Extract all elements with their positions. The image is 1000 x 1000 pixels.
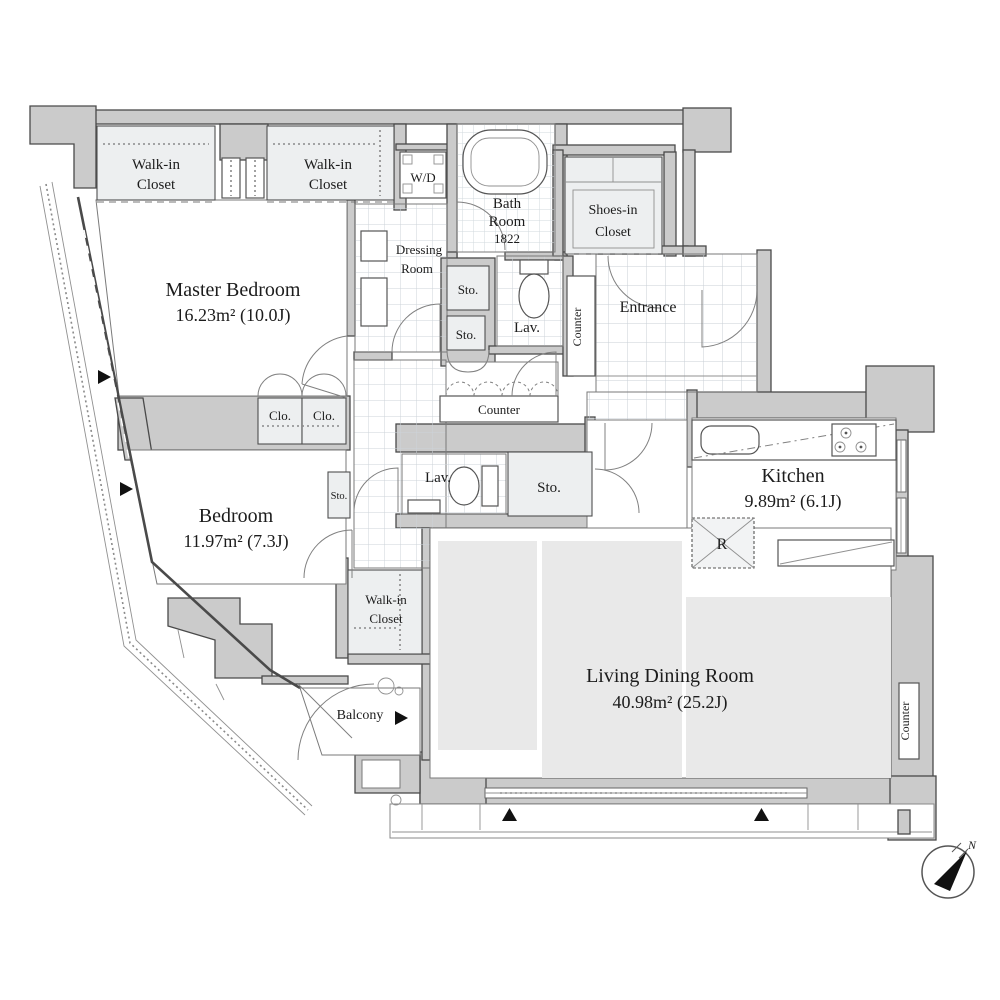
left-balcony-tick-2 <box>216 684 224 700</box>
wic2-label-line1: Walk-in <box>304 157 352 173</box>
living-shade-panel-1 <box>438 541 537 750</box>
wall-top <box>85 110 697 124</box>
bedroom-name: Bedroom <box>199 505 274 527</box>
bath-label-line1: Bath <box>493 196 522 212</box>
bath-size-label: 1822 <box>494 231 520 246</box>
bottom-balcony-floor <box>390 804 934 838</box>
wall-right-upper <box>683 150 695 256</box>
wd-label: W/D <box>410 170 435 185</box>
sto2-label: Sto. <box>456 327 477 342</box>
clo2-label: Clo. <box>313 408 335 423</box>
floor-plan-drawing: N Walk-in Closet Walk-in Closet W/D Bath… <box>0 0 1000 1000</box>
refrigerator-label: R <box>717 536 728 553</box>
dressing-cabinet-1 <box>361 231 387 261</box>
below-balcony-box <box>362 760 400 788</box>
entrance-label: Entrance <box>620 299 677 316</box>
clo1-label: Clo. <box>269 408 291 423</box>
view-triangle-left-1 <box>98 370 111 384</box>
wic3-label-line2: Closet <box>369 611 403 626</box>
dressing-cabinet-2 <box>361 278 387 326</box>
wall-bath-left <box>447 124 457 260</box>
wall-balcony-top <box>262 676 348 684</box>
kitchen-window-2 <box>897 498 906 553</box>
shoes-closet-label-line1: Shoes-in <box>589 203 638 218</box>
master-bedroom-area: 16.23m² (10.0J) <box>176 305 291 326</box>
wall-dressing-bottom <box>354 352 392 360</box>
hall-floor <box>587 420 687 543</box>
entrance-floor <box>596 254 757 392</box>
dressing-label-line2: Room <box>401 261 433 276</box>
wall-entrance-to-pillar <box>695 392 870 418</box>
wall-wd-top <box>396 144 448 150</box>
stove-burner-2-dot <box>839 446 842 449</box>
kitchen-area: 9.89m² (6.1J) <box>745 491 842 512</box>
stove-burner-3-dot <box>860 446 863 449</box>
compass-north-label: N <box>967 838 977 852</box>
counter-living-label: Counter <box>898 702 912 741</box>
kitchen-window-1 <box>897 440 906 492</box>
wall-top-left-pillar <box>30 106 96 188</box>
bath-label-line2: Room <box>489 214 526 230</box>
balcony-label: Balcony <box>337 708 384 723</box>
counter-hall-label: Counter <box>478 402 521 417</box>
wic3-label-line1: Walk-in <box>365 592 407 607</box>
counter-niche-floor <box>446 362 558 396</box>
lav2-sink <box>408 500 440 513</box>
sto1-label: Sto. <box>458 282 479 297</box>
wall-wic3-bottom <box>348 654 434 664</box>
kitchen-stove <box>832 424 876 456</box>
wall-wic-divider <box>220 124 268 160</box>
stove-burner-1-dot <box>845 432 848 435</box>
kitchen-sink <box>701 426 759 454</box>
wall-bedroom-bottom-steps <box>168 598 272 678</box>
living-shade-panel-2 <box>542 541 682 778</box>
left-balcony-tick-1 <box>178 630 184 658</box>
sto4-label: Sto. <box>537 480 561 496</box>
toilet2-tank <box>482 466 498 506</box>
lav1-label: Lav. <box>514 320 540 336</box>
living-dining-name: Living Dining Room <box>586 665 754 687</box>
entrance-subhall-floor <box>587 392 687 420</box>
bathtub-outer <box>463 130 547 194</box>
wall-entrance-right <box>757 250 771 394</box>
living-dining-area: 40.98m² (25.2J) <box>613 692 728 713</box>
wall-shoes-top <box>553 145 675 155</box>
bottom-balcony-end-box <box>898 810 910 834</box>
wall-lav1-bottom <box>489 346 573 354</box>
living-shade-panel-3 <box>686 597 891 778</box>
wall-top-right-pillar <box>683 108 731 152</box>
wic1-label-line1: Walk-in <box>132 157 180 173</box>
wic2-label-line2: Closet <box>309 177 348 193</box>
floor-plan-page: N Walk-in Closet Walk-in Closet W/D Bath… <box>0 0 1000 1000</box>
toilet2-bowl <box>449 467 479 505</box>
dressing-label-line1: Dressing <box>396 242 443 257</box>
counter-entrance-label: Counter <box>570 308 584 347</box>
wall-mb-east <box>347 200 355 336</box>
wall-shoes-right <box>664 152 676 256</box>
bedroom-area: 11.97m² (7.3J) <box>183 531 288 552</box>
toilet1-bowl <box>519 274 549 318</box>
sto3-label: Sto. <box>331 491 348 502</box>
wic1-label-line2: Closet <box>137 177 176 193</box>
lav2-label: Lav. <box>425 470 451 486</box>
compass-icon: N <box>922 838 977 898</box>
shoes-closet-label-line2: Closet <box>595 225 631 240</box>
master-bedroom-name: Master Bedroom <box>166 279 301 301</box>
view-triangle-left-2 <box>120 482 133 496</box>
toilet1-tank <box>520 260 548 274</box>
kitchen-name: Kitchen <box>761 465 824 487</box>
